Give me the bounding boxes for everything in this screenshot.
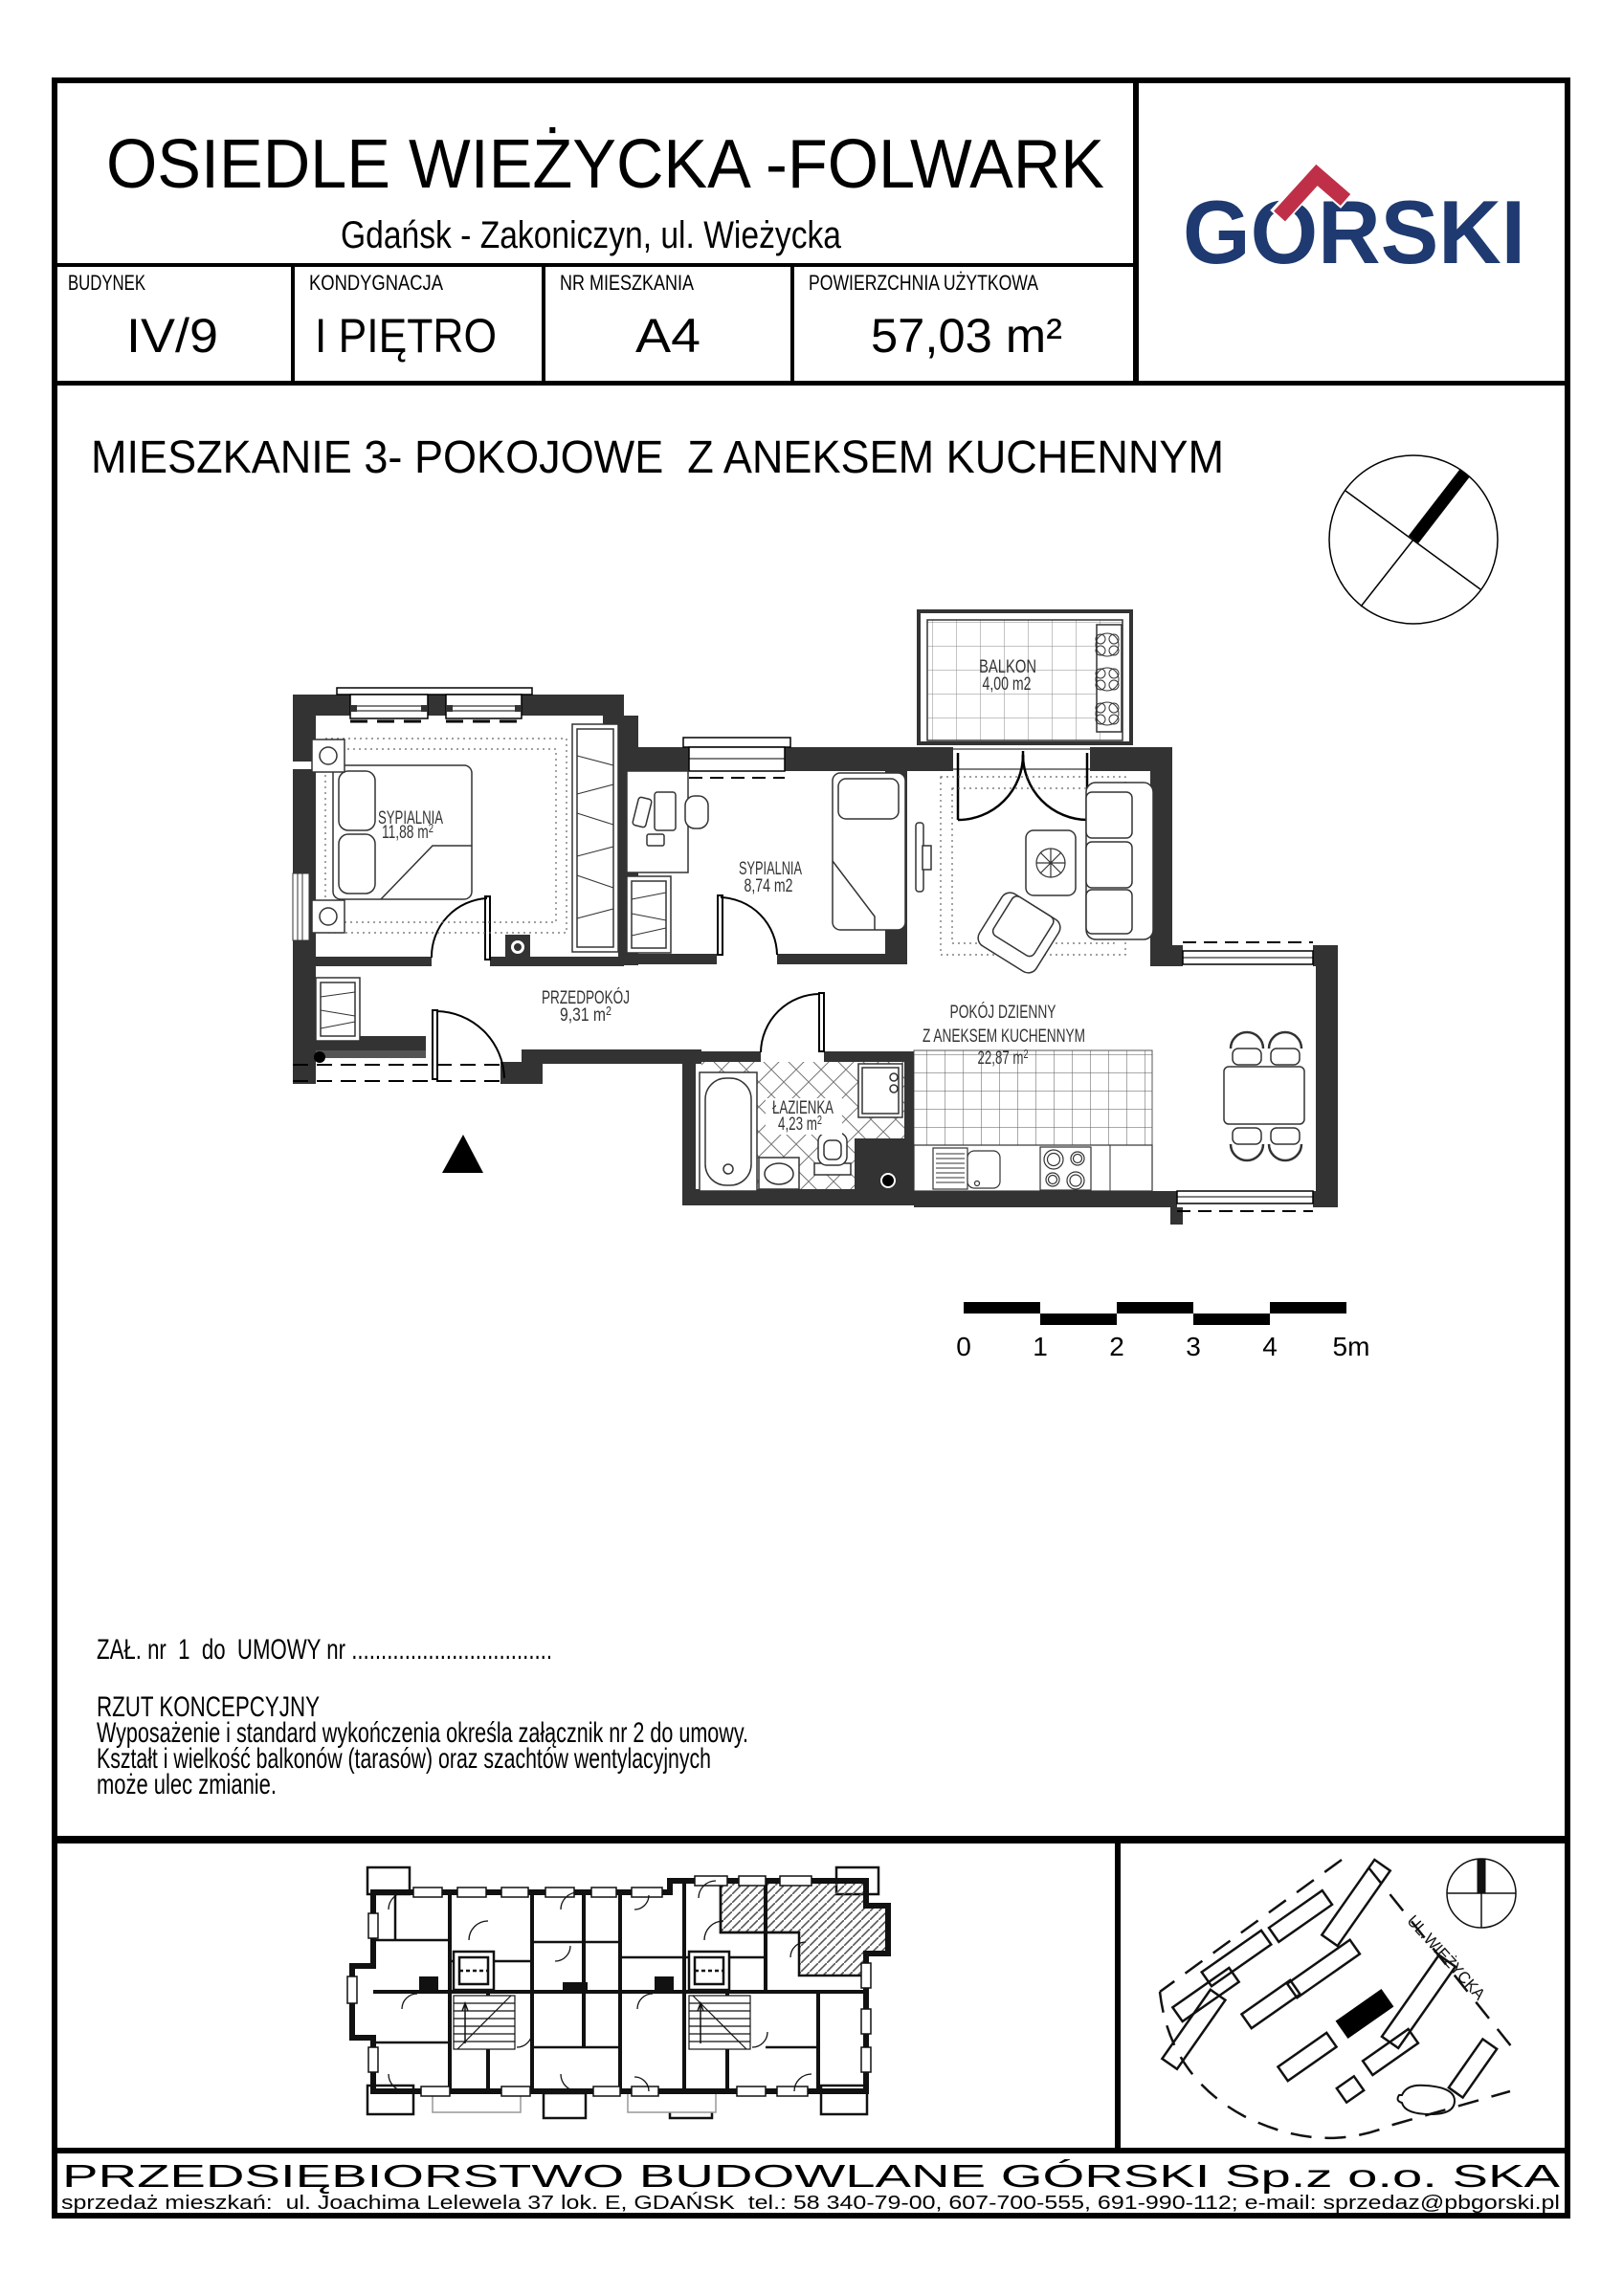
svg-text:POWIERZCHNIA UŻYTKOWA: POWIERZCHNIA UŻYTKOWA (809, 271, 1038, 295)
svg-text:MIESZKANIE 3- POKOJOWE Z ANEK: MIESZKANIE 3- POKOJOWE Z ANEKSEM KUCHENN… (91, 432, 1224, 483)
svg-text:A4: A4 (635, 309, 700, 363)
svg-text:0: 0 (956, 1332, 971, 1361)
svg-text:1: 1 (1033, 1332, 1048, 1361)
svg-text:5m: 5m (1333, 1332, 1370, 1361)
svg-text:2: 2 (1109, 1332, 1124, 1361)
svg-text:BUDYNEK: BUDYNEK (68, 271, 145, 295)
svg-text:8,74 m2: 8,74 m2 (745, 876, 793, 896)
svg-text:NR MIESZKANIA: NR MIESZKANIA (560, 271, 694, 295)
svg-text:I PIĘTRO: I PIĘTRO (315, 309, 497, 363)
svg-text:Gdańsk - Zakoniczyn, ul. Wieży: Gdańsk - Zakoniczyn, ul. Wieżycka (341, 214, 842, 256)
svg-text:POKÓJ DZIENNY: POKÓJ DZIENNY (950, 1002, 1056, 1023)
svg-text:UL.WIEŻYCKA: UL.WIEŻYCKA (1404, 1911, 1489, 2003)
svg-text:3: 3 (1186, 1332, 1201, 1361)
svg-text:GORSKI: GORSKI (1183, 182, 1525, 282)
svg-text:PRZEDSIĘBIORSTWO BUDOWLANE GÓR: PRZEDSIĘBIORSTWO BUDOWLANE GÓRSKI Sp.z o… (62, 2158, 1560, 2194)
svg-text:IV/9: IV/9 (126, 309, 218, 363)
svg-text:57,03 m²: 57,03 m² (871, 309, 1062, 363)
svg-text:4,00 m2: 4,00 m2 (983, 674, 1032, 695)
svg-text:4: 4 (1262, 1332, 1278, 1361)
svg-text:OSIEDLE WIEŻYCKA -FOLWARK: OSIEDLE WIEŻYCKA -FOLWARK (106, 126, 1104, 203)
svg-text:4,23 m2: 4,23 m2 (778, 1113, 822, 1135)
svg-text:9,31 m2: 9,31 m2 (560, 1004, 611, 1026)
svg-text:może ulec zmianie.: może ulec zmianie. (97, 1769, 277, 1800)
svg-text:ZAŁ. nr 1 do UMOWY nr .....: ZAŁ. nr 1 do UMOWY nr ..................… (97, 1634, 552, 1666)
svg-text:11,88 m2: 11,88 m2 (382, 821, 434, 843)
svg-text:KONDYGNACJA: KONDYGNACJA (309, 271, 443, 295)
svg-text:22,87 m2: 22,87 m2 (978, 1047, 1029, 1069)
svg-text:sprzedaż mieszkań: ul. Joachi: sprzedaż mieszkań: ul. Joachima Lelewela… (61, 2192, 1560, 2214)
svg-text:Z ANEKSEM KUCHENNYM: Z ANEKSEM KUCHENNYM (923, 1027, 1085, 1047)
